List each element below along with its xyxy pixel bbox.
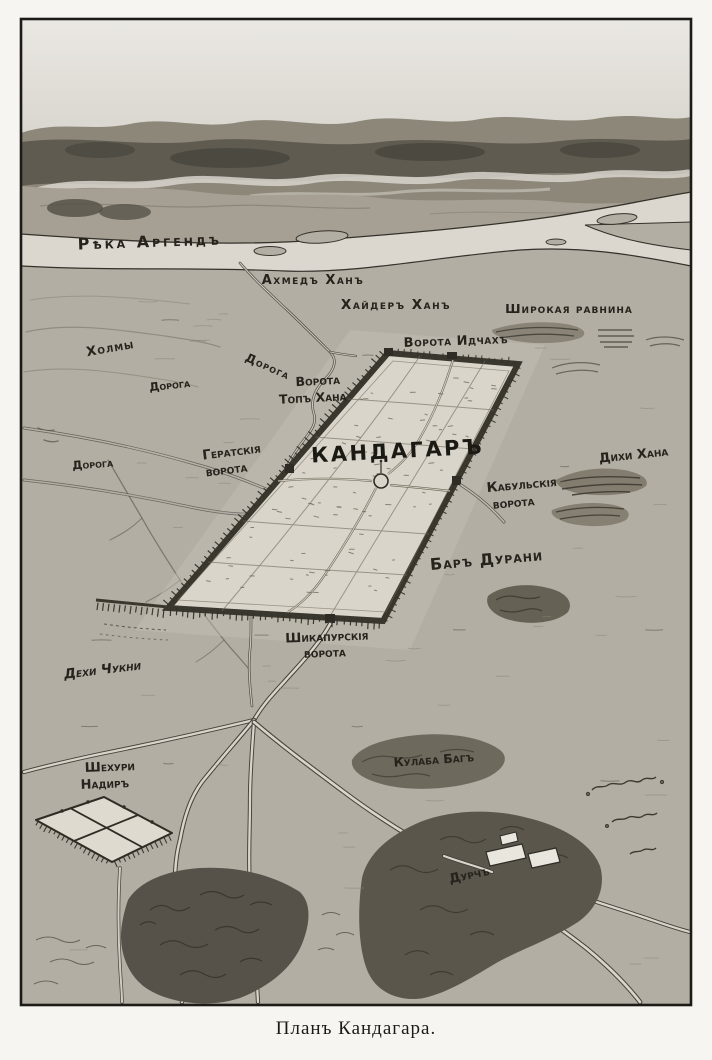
kandahar-plan-engraving: Рѣка Аргендъ Ахмедъ Ханъ Хайдеръ Ханъ Ши… (0, 0, 712, 1060)
label-wide-plain: Широкая равнина (505, 301, 633, 316)
gate-shikapur-mark (325, 614, 335, 623)
label-gate-shikapur-2: ворота (304, 645, 346, 661)
gate-kabul-mark (452, 476, 461, 485)
label-gate-top-khana-1: Ворота (295, 372, 340, 389)
gate-top-khana-mark (384, 348, 393, 356)
gate-herat-mark (285, 464, 294, 473)
label-khaider-khan: Хайдеръ Ханъ (341, 297, 451, 313)
gate-idchakh-mark (447, 352, 457, 359)
label-gate-shikapur-1: Шикапурскія (285, 629, 369, 647)
label-ahmed-khan: Ахмедъ Ханъ (262, 273, 365, 288)
figure-caption: Планъ Кандагара. (276, 1018, 436, 1039)
label-road-lower: Дорога (72, 456, 115, 473)
label-shekhuri-nadir-2: Надиръ (80, 776, 129, 793)
sky (21, 19, 691, 135)
label-shekhuri-nadir-1: Шехури (85, 759, 136, 776)
